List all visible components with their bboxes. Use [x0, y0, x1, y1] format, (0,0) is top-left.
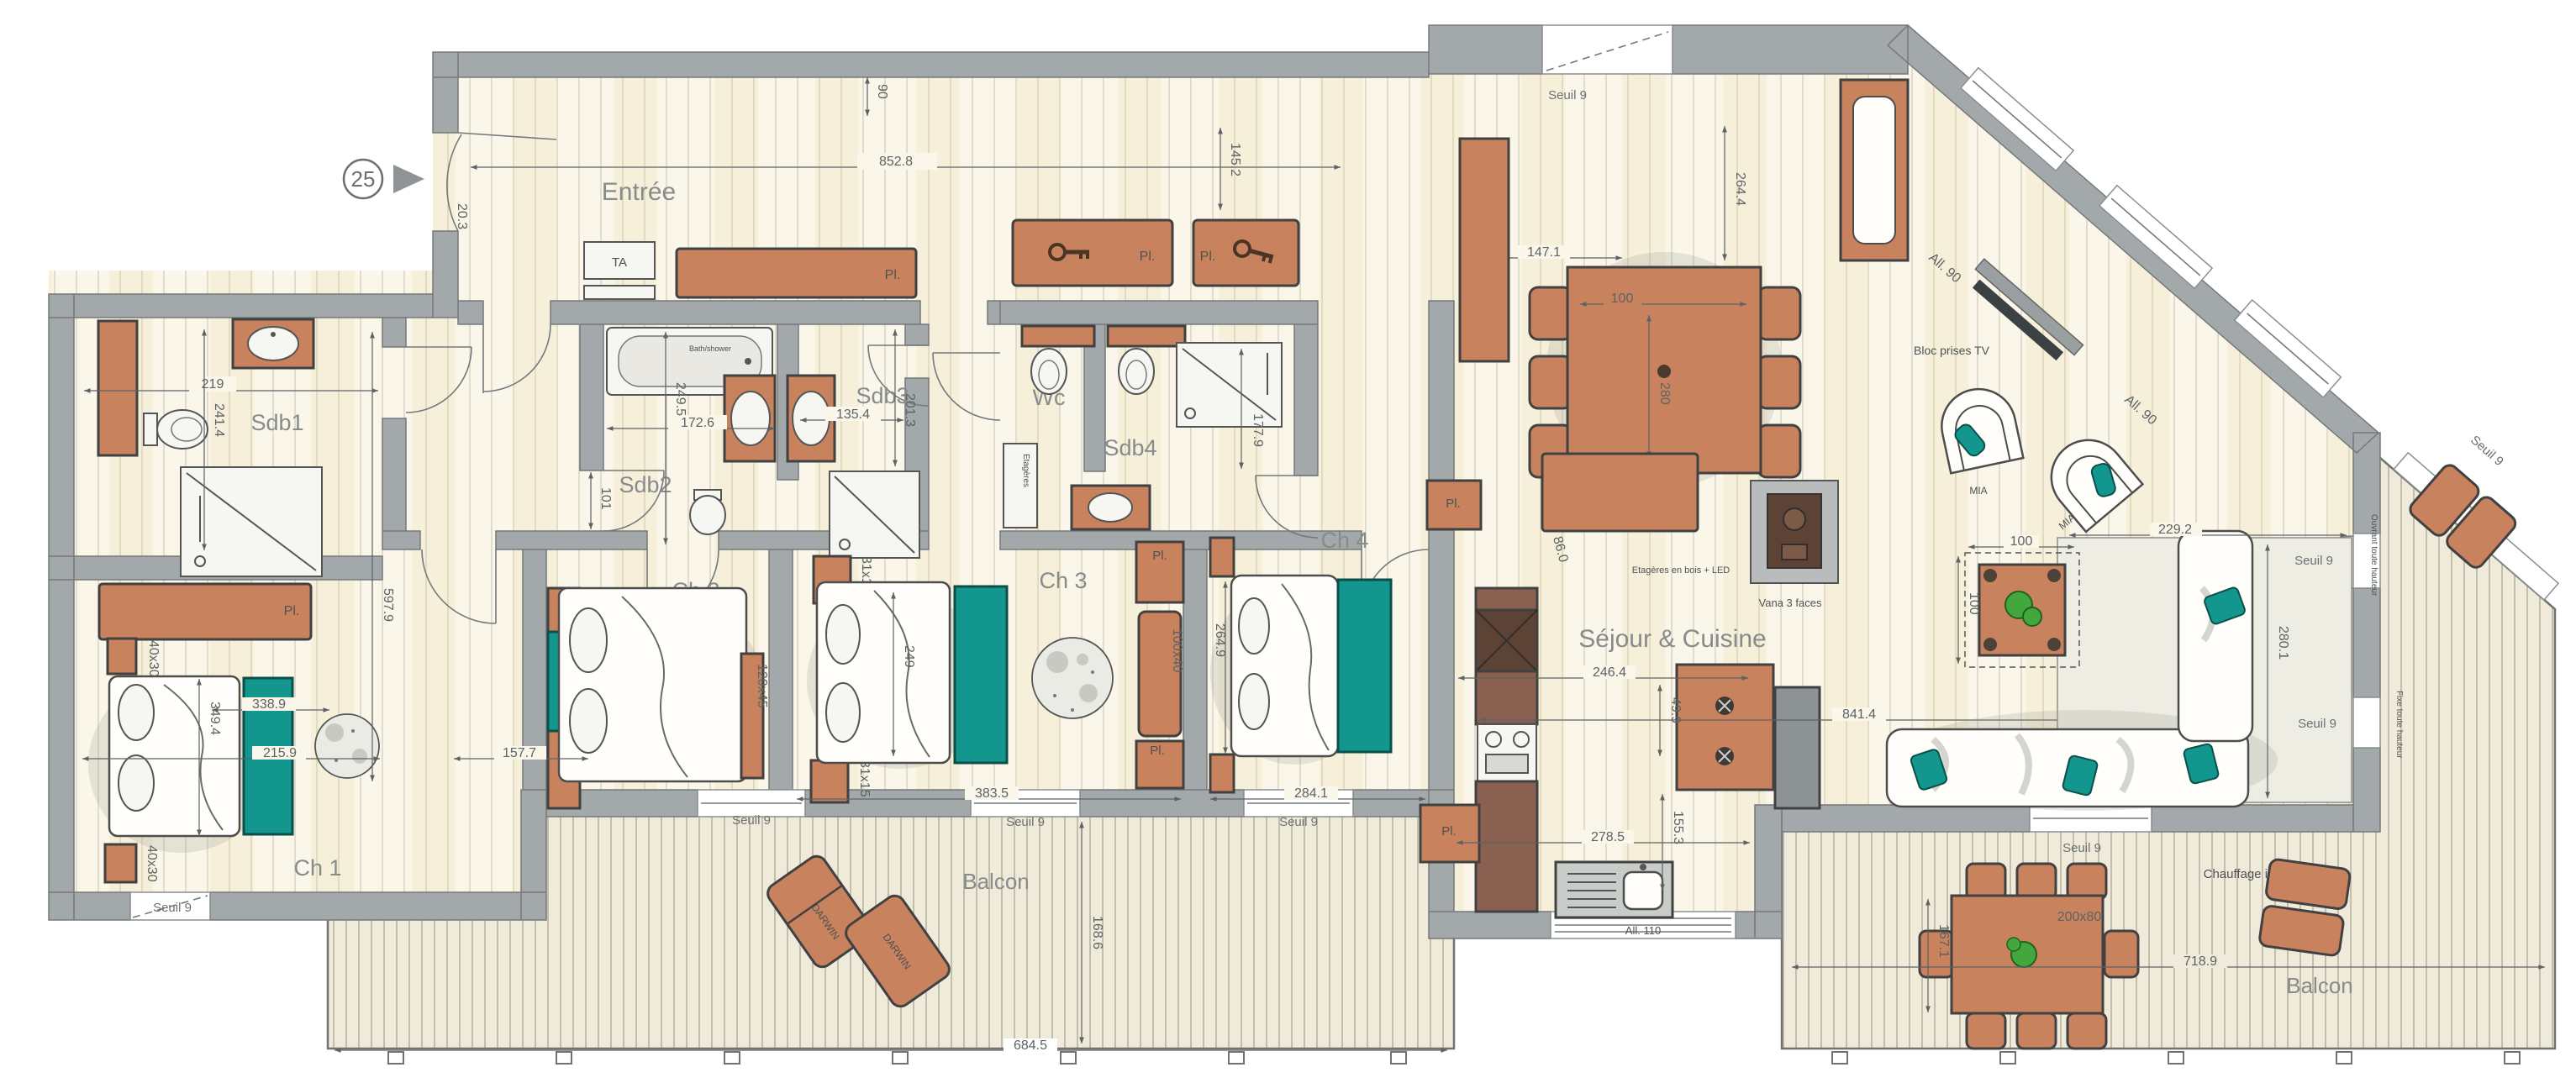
dim-nightstand2: 40x30 — [145, 845, 159, 882]
shower — [181, 467, 322, 576]
label-pl-kitchen: Pl. — [1441, 824, 1457, 839]
dim-balcon-right-w: 718.9 — [2184, 954, 2217, 969]
shower — [830, 471, 919, 558]
dim-coffee-w: 100 — [2010, 534, 2033, 549]
label-pl-ch4: Pl. — [1446, 497, 1461, 511]
label-mia-1: MIA — [1969, 485, 1987, 497]
dim-entry-door: 90 — [875, 84, 889, 99]
label-pl-ch1: Pl. — [284, 604, 300, 618]
dim-kitchen-155: 155.3 — [1671, 811, 1685, 844]
dim-dining-offset: 147.1 — [1527, 245, 1561, 260]
dim-ch4-height: 264.9 — [1213, 623, 1227, 657]
label-seuil-bottom: Seuil 9 — [2062, 841, 2101, 855]
dining-table: 100 280 — [1530, 252, 1800, 487]
dim-sdb2-width: 172.6 — [681, 416, 714, 430]
dim-ch3-nightstand2: 31x15 — [857, 760, 872, 797]
label-seuil-right1: Seuil 9 — [2294, 554, 2333, 568]
bed — [1231, 576, 1338, 756]
dim-balcon-left-w: 684.5 — [1014, 1038, 1047, 1053]
dim-dining-depth: 264.4 — [1733, 172, 1747, 206]
bed — [559, 588, 746, 781]
label-ta: TA — [612, 255, 627, 270]
dim-sejour-width: 841.4 — [1842, 707, 1876, 722]
room-label-sdb2: Sdb2 — [619, 472, 672, 497]
room-label-sdb3: Sdb3 — [856, 383, 909, 408]
label-pl-corridor1: Pl. — [1140, 250, 1156, 264]
label-seuil-top: Seuil 9 — [1548, 88, 1587, 103]
dim-corridor-height: 597.9 — [381, 588, 395, 622]
dim-ch1-bed: 349.4 — [208, 702, 222, 735]
label-seuil-ch3: Seuil 9 — [1006, 815, 1045, 829]
plant — [315, 714, 379, 778]
dim-table-length: 280 — [1657, 382, 1672, 405]
label-pl-ch3-top: Pl. — [1152, 549, 1167, 563]
dim-ch1-bottom: 215.9 — [263, 746, 297, 760]
room-label-sejour: Séjour & Cuisine — [1578, 625, 1766, 653]
dim-sdb4-shower: 177.9 — [1251, 413, 1265, 447]
stove — [1478, 724, 1536, 781]
shower — [1177, 343, 1282, 427]
dim-sdb1-height: 241.4 — [212, 403, 226, 437]
label-seuil-ch2: Seuil 9 — [732, 813, 771, 828]
room-label-sdb4: Sdb4 — [1104, 435, 1156, 460]
dim-sofa-280: 280.1 — [2276, 626, 2290, 660]
room-label-entree: Entrée — [602, 178, 676, 206]
label-pl-ch3-bottom: Pl. — [1150, 744, 1165, 758]
dim-ch3-bench: 100x40 — [1170, 628, 1184, 673]
label-etageres: Etagères — [1021, 454, 1030, 487]
label-etageres-led: Etagères en bois + LED — [1632, 565, 1731, 576]
label-ouvrant: Ouvrant toute hauteur — [2369, 514, 2378, 597]
coffee-table — [1965, 553, 2079, 667]
dim-entree-width: 852.8 — [879, 155, 913, 169]
dim-ch3-bed: 249 — [902, 645, 916, 668]
label-seuil-ch1: Seuil 9 — [153, 901, 192, 915]
entry-arrow-icon — [393, 165, 424, 193]
label-bloc-tv: Bloc prises TV — [1914, 344, 1990, 357]
dim-sdb3-height: 201.3 — [903, 393, 917, 427]
dim-table-width: 100 — [1611, 292, 1634, 306]
plant — [1032, 638, 1113, 718]
room-label-ch4: Ch 4 — [1320, 528, 1368, 553]
room-label-balcon-right: Balcon — [2286, 973, 2353, 998]
sink-unit — [1556, 862, 1673, 917]
dim-balcon-left-d: 168.6 — [1090, 916, 1104, 949]
label-pl-entree: Pl. — [885, 268, 901, 282]
dim-sofa-229: 229.2 — [2158, 523, 2192, 537]
room-label-balcon-left: Balcon — [962, 869, 1030, 894]
bed — [817, 582, 950, 763]
unit-number: 25 — [351, 166, 376, 192]
label-seuil-ch4: Seuil 9 — [1279, 815, 1318, 829]
dim-kitchen-278: 278.5 — [1591, 830, 1625, 844]
dim-kitchen-246: 246.4 — [1593, 665, 1626, 680]
dim-ch4-bottom: 284.1 — [1294, 786, 1328, 801]
label-vana: Vana 3 faces — [1759, 597, 1822, 609]
dim-outdoor-table: 200x80 — [2057, 910, 2102, 924]
label-pl-corridor2: Pl. — [1200, 250, 1216, 264]
floorplan-page: 25 Entrée 852.8 90 20.3 TA Pl. Pl. Pl. 1… — [0, 0, 2576, 1083]
fireplace — [1751, 481, 1838, 583]
dim-20-3: 20.3 — [455, 203, 469, 229]
room-label-ch1: Ch 1 — [293, 855, 341, 881]
room-label-ch3: Ch 3 — [1039, 568, 1087, 593]
label-fixe: Fixe toute hauteur — [2394, 691, 2404, 759]
label-seuil-right2: Seuil 9 — [2298, 717, 2336, 731]
dim-ch3-bottom: 383.5 — [975, 786, 1009, 801]
dim-sdb1-width: 219 — [202, 377, 224, 392]
dim-corridor-145: 145.2 — [1228, 143, 1242, 176]
dim-ch1-wardrobe: 338.9 — [252, 697, 286, 712]
dim-balcon-right-d: 167.1 — [1936, 924, 1951, 958]
bed — [109, 676, 240, 836]
dim-sdb2-door: 101 — [598, 487, 613, 510]
dim-ch2-bench: 120x45 — [755, 664, 769, 708]
dim-nightstand1: 40x30 — [146, 640, 161, 677]
label-seuil-diagonal: Seuil 9 — [2468, 433, 2506, 469]
dim-sdb3-width: 135.4 — [836, 407, 870, 422]
label-bath-shower: Bath/shower — [689, 344, 731, 353]
unit-marker: 25 — [344, 160, 424, 198]
dim-sdb2-height: 249.5 — [673, 382, 687, 416]
dim-coffee-h: 100 — [1967, 592, 1981, 615]
dim-ch2-bottom: 157.7 — [503, 746, 536, 760]
label-all110: All. 110 — [1625, 924, 1661, 937]
room-label-sdb1: Sdb1 — [250, 410, 303, 435]
